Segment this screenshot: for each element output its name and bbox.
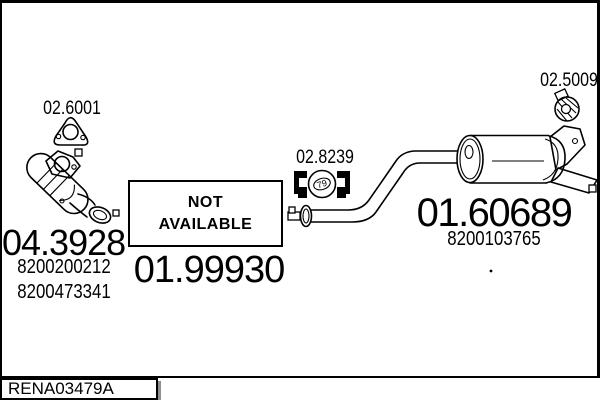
part-code-rear-muffler: 01.60689 bbox=[417, 193, 572, 233]
drawing-reference-text: RENA03479A bbox=[8, 379, 114, 399]
oe-number-catalytic-2: 8200473341 bbox=[8, 282, 119, 302]
stray-speck bbox=[490, 270, 493, 273]
clamp-icon: 79 bbox=[294, 171, 350, 199]
oe-number-catalytic-1: 8200200212 bbox=[8, 257, 119, 277]
muffler-bracket bbox=[550, 126, 585, 170]
exhaust-parts-diagram: 79 bbox=[0, 0, 600, 400]
drawing-reference-box: RENA03479A bbox=[0, 378, 158, 400]
part-code-mount-text: 02.5009 bbox=[540, 71, 598, 90]
gasket-icon bbox=[54, 118, 87, 145]
part-code-clamp-text: 02.8239 bbox=[296, 148, 354, 167]
part-code-mount: 02.5009 bbox=[535, 71, 600, 90]
catalytic-converter-drawing bbox=[21, 148, 113, 226]
part-code-clamp: 02.8239 bbox=[291, 148, 360, 167]
part-code-mid-pipe: 01.99930 bbox=[134, 251, 285, 289]
part-code-gasket: 02.6001 bbox=[38, 99, 107, 118]
oe-number-catalytic-2-text: 8200473341 bbox=[17, 282, 110, 302]
rear-muffler-drawing bbox=[457, 126, 597, 193]
oe-number-rear-muffler: 8200103765 bbox=[438, 229, 549, 249]
part-code-gasket-text: 02.6001 bbox=[43, 99, 101, 118]
oe-number-catalytic-1-text: 8200200212 bbox=[17, 257, 110, 277]
not-available-box: NOT AVAILABLE bbox=[128, 180, 283, 247]
mount-icon bbox=[555, 89, 579, 121]
not-available-line1: NOT bbox=[188, 192, 223, 214]
oe-number-rear-muffler-text: 8200103765 bbox=[447, 229, 540, 249]
not-available-line2: AVAILABLE bbox=[159, 214, 253, 236]
